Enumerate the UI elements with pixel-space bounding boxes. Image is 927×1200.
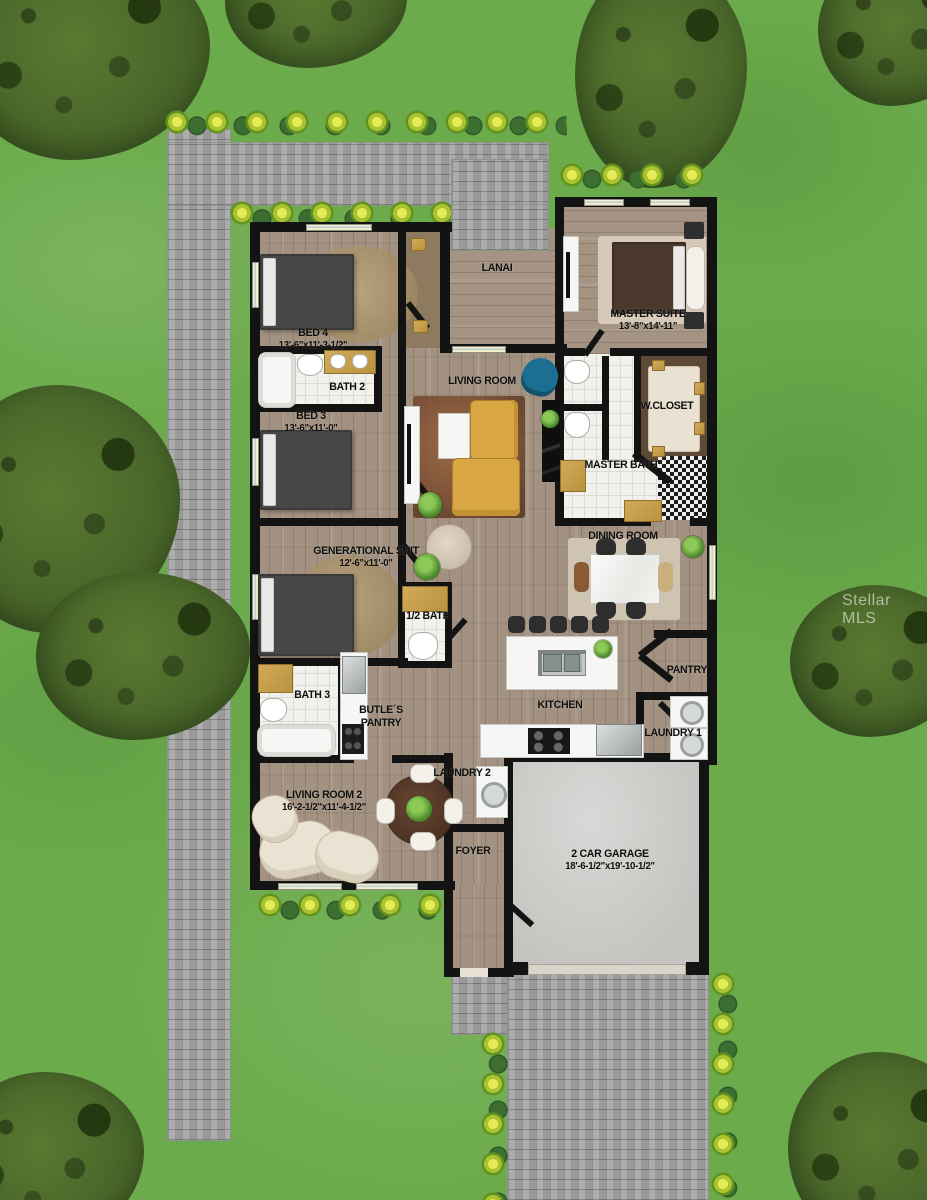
- room-name: W.CLOSET: [641, 400, 694, 412]
- room-label-garage: 2 CAR GARAGE18'-6-1/2"x19'-10-1/2": [565, 848, 655, 874]
- nightstand: [684, 312, 704, 329]
- room-label-bed4: BED 413'-6"x11'-3-1/2": [279, 327, 348, 353]
- room-label-generational-suit: GENERATIONAL SUIT12'-6"x11'-0": [313, 545, 419, 571]
- closet-shelf: [652, 446, 665, 457]
- tv: [566, 252, 570, 298]
- room-label-living-room2: LIVING ROOM 216'-2-1/2"x11'-4-1/2": [282, 789, 366, 815]
- room-label-bath3: BATH 3: [294, 689, 330, 702]
- cooktop: [528, 728, 570, 754]
- garage-door: [528, 964, 686, 975]
- sofa-sectional: [470, 400, 518, 460]
- wall: [398, 228, 406, 352]
- front-door-opening: [460, 968, 488, 977]
- plant: [406, 796, 432, 822]
- lanai-patio-inner: [452, 205, 548, 250]
- window: [584, 199, 624, 206]
- room-label-pantry: PANTRY: [667, 664, 708, 677]
- nightstand: [684, 222, 704, 239]
- room-dims: 16'-2-1/2"x11'-4-1/2": [282, 802, 366, 814]
- fridge: [596, 724, 642, 756]
- room-name: DINING ROOM: [588, 530, 658, 542]
- room-label-butlers-pantry: BUTLE´S PANTRY: [349, 704, 412, 731]
- room-name: BATH 2: [329, 381, 365, 393]
- closet-checker-floor: [658, 456, 708, 520]
- room-label-half-bath: 1/2 BATH: [406, 610, 450, 623]
- vanity: [624, 500, 662, 522]
- window: [356, 883, 418, 890]
- tree: [225, 0, 407, 68]
- shrub-row-drive-left: [474, 1032, 512, 1200]
- bed-pillows: [673, 246, 685, 310]
- room-name: PANTRY: [667, 664, 708, 676]
- room-label-kitchen: KITCHEN: [538, 699, 583, 712]
- room-name: BUTLE´S PANTRY: [359, 704, 403, 729]
- wall: [699, 755, 709, 975]
- room-name: 1/2 BATH: [406, 610, 450, 622]
- dining-chair: [626, 602, 646, 619]
- room-label-bed3: BED 313'-6"x11'-0": [284, 410, 337, 436]
- wall: [686, 962, 709, 975]
- wall: [555, 197, 717, 207]
- tree: [788, 1052, 927, 1200]
- room-name: MASTER SUITE: [610, 308, 685, 320]
- room-name: MASTER BATH: [585, 459, 658, 471]
- plant: [682, 536, 704, 558]
- room-dims: 13'-6"x11'-0": [284, 423, 337, 435]
- room-dims: 12'-6"x11'-0": [313, 558, 419, 570]
- wall: [504, 962, 528, 975]
- wall: [707, 197, 717, 765]
- washer-door: [680, 701, 704, 725]
- butler-appliance: [342, 656, 366, 694]
- bar-stool: [508, 616, 525, 633]
- chaise-bench: [686, 246, 705, 310]
- room-name: BED 4: [298, 327, 328, 339]
- bar-stool: [592, 616, 609, 633]
- bathtub: [257, 724, 336, 757]
- vanity: [560, 460, 586, 492]
- room-label-living-room: LIVING ROOM: [448, 375, 516, 388]
- tree: [818, 0, 927, 106]
- chair: [410, 832, 436, 851]
- closet-shelf: [413, 320, 428, 333]
- room-name: 2 CAR GARAGE: [571, 848, 649, 860]
- room-name: LAUNDRY 1: [644, 727, 701, 739]
- chair: [410, 764, 436, 783]
- window: [650, 199, 690, 206]
- closet-shelf: [694, 422, 705, 435]
- bar-stool: [571, 616, 588, 633]
- room-dims: 18'-6-1/2"x19'-10-1/2": [565, 861, 655, 873]
- shrub-row-top-right: [560, 150, 718, 200]
- room-label-laundry1: LAUNDRY 1: [644, 727, 701, 740]
- wall: [398, 661, 452, 668]
- room-name: BED 3: [296, 410, 326, 422]
- wall: [450, 824, 507, 832]
- chair: [444, 798, 463, 824]
- site-plan: LANAI MASTER SUITE13'-8"x14'-11" BED 413…: [0, 0, 927, 1200]
- wall: [440, 222, 450, 352]
- wall: [690, 518, 717, 526]
- sink: [330, 354, 346, 369]
- plant: [541, 410, 559, 428]
- plant: [594, 640, 612, 658]
- dining-chair: [658, 562, 673, 592]
- driveway: [508, 972, 708, 1200]
- toilet: [408, 632, 438, 660]
- room-label-master-bath: MASTER BATH: [585, 459, 658, 472]
- dining-chair: [574, 562, 589, 592]
- plant: [418, 492, 442, 518]
- closet-shelf: [652, 360, 665, 371]
- coffee-table: [438, 413, 470, 459]
- toilet: [564, 360, 590, 384]
- tv: [407, 424, 411, 484]
- closet-shelf: [694, 382, 705, 395]
- foyer-floor: [448, 885, 510, 975]
- bar-stool: [529, 616, 546, 633]
- room-name: BATH 3: [294, 689, 330, 701]
- vanity: [258, 664, 293, 693]
- room-dims: 13'-6"x11'-3-1/2": [279, 340, 348, 352]
- room-label-foyer: FOYER: [456, 845, 491, 858]
- bar-stool: [550, 616, 567, 633]
- room-label-master-suite: MASTER SUITE13'-8"x14'-11": [610, 308, 685, 334]
- wall: [392, 755, 453, 763]
- bed-pillows: [263, 258, 276, 326]
- room-name: FOYER: [456, 845, 491, 857]
- sofa-sectional: [452, 458, 520, 516]
- window: [252, 262, 259, 308]
- vanity: [402, 586, 448, 612]
- wall: [250, 518, 406, 526]
- tree: [0, 1072, 144, 1200]
- wall: [250, 222, 260, 890]
- room-name: LIVING ROOM: [448, 375, 516, 387]
- window: [278, 883, 342, 890]
- wall: [610, 348, 717, 356]
- room-label-wcloset: W.CLOSET: [641, 400, 694, 413]
- sink: [352, 354, 368, 369]
- room-label-lanai: LANAI: [482, 262, 513, 275]
- window: [252, 438, 259, 486]
- wall: [444, 968, 460, 977]
- window: [306, 224, 372, 231]
- window: [709, 545, 716, 600]
- room-name: LAUNDRY 2: [433, 767, 490, 779]
- bed-pillows: [261, 578, 274, 652]
- washer-door: [481, 782, 507, 808]
- bed-pillows: [263, 434, 276, 506]
- room-label-laundry2: LAUNDRY 2: [433, 767, 490, 780]
- room-name: KITCHEN: [538, 699, 583, 711]
- room-label-dining-room: DINING ROOM: [588, 530, 658, 543]
- toilet: [564, 412, 590, 438]
- room-label-bath2: BATH 2: [329, 381, 365, 394]
- watermark: Stellar MLS: [842, 592, 927, 628]
- sink-basin: [564, 654, 580, 672]
- dining-table: [590, 554, 660, 604]
- bathtub: [258, 352, 296, 408]
- closet-shelf: [411, 238, 426, 251]
- shrub-row-rear: [258, 886, 458, 924]
- shrub-row-top: [165, 96, 567, 148]
- room-name: LIVING ROOM 2: [286, 789, 362, 801]
- shrub-row-drive-right: [702, 972, 744, 1200]
- room-name: LANAI: [482, 262, 513, 274]
- chair: [376, 798, 395, 824]
- room-name: GENERATIONAL SUIT: [313, 545, 419, 557]
- toilet: [260, 698, 287, 722]
- window: [452, 346, 506, 353]
- room-dims: 13'-8"x14'-11": [610, 321, 685, 333]
- toilet: [297, 354, 323, 376]
- sink-basin: [543, 654, 562, 672]
